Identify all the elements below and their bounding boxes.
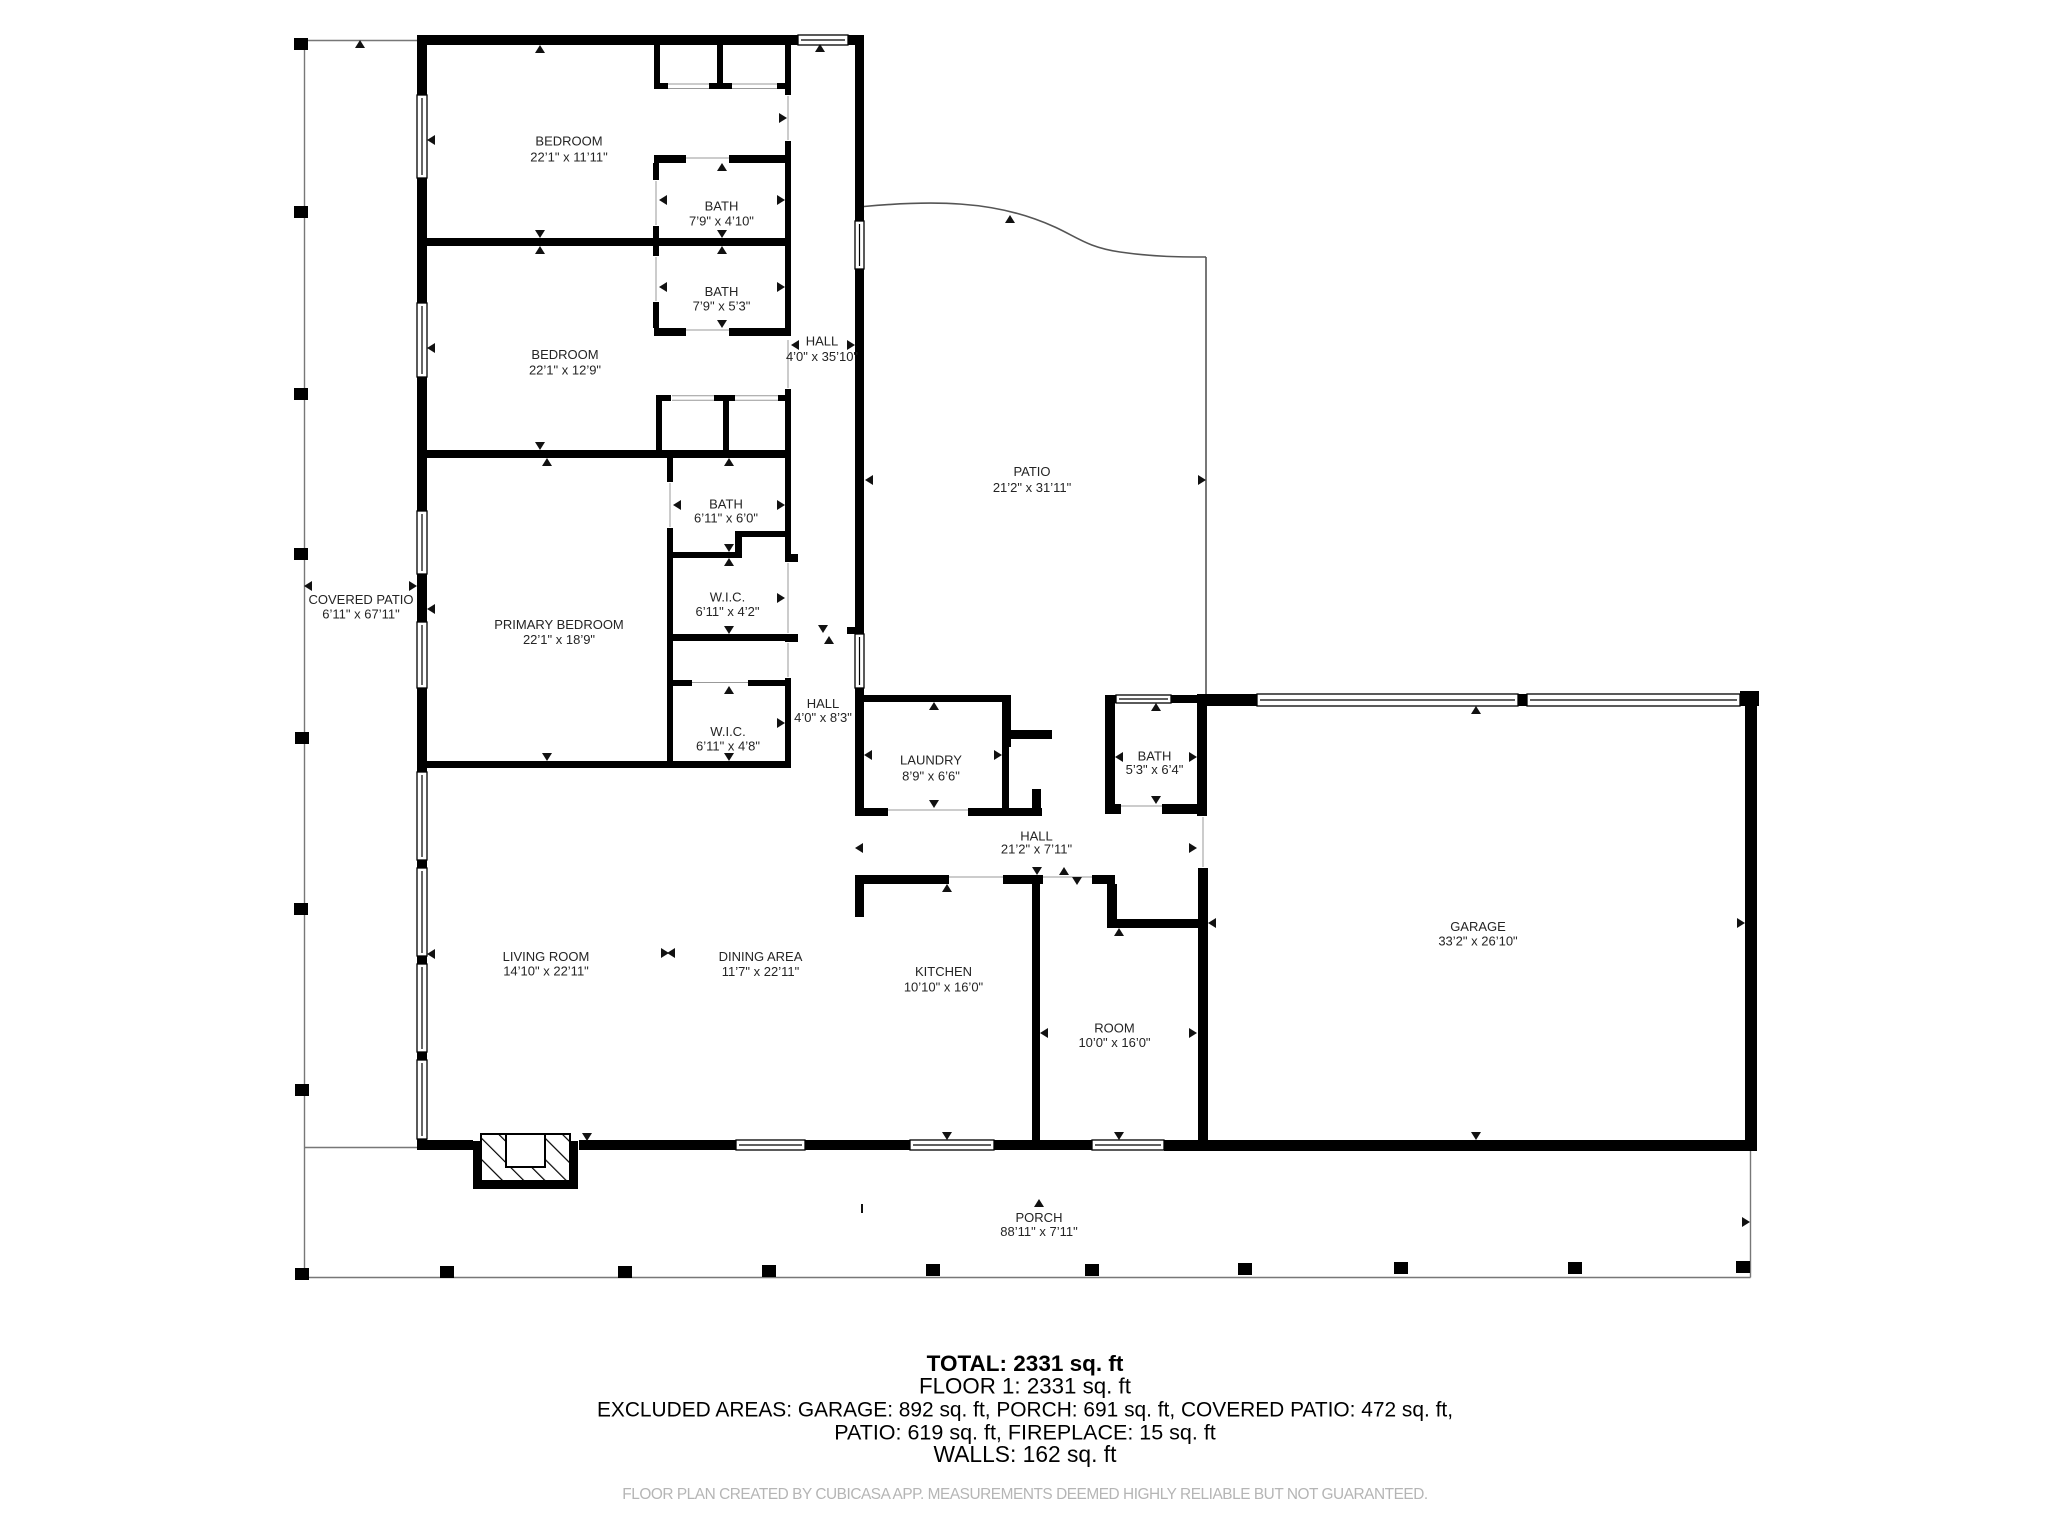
- svg-text:HALL: HALL: [806, 333, 839, 348]
- svg-text:88’11" x 7’11": 88’11" x 7’11": [1000, 1224, 1078, 1239]
- svg-text:BATH: BATH: [709, 496, 743, 511]
- svg-text:6’11" x 4’2": 6’11" x 4’2": [696, 604, 760, 619]
- svg-text:PATIO: PATIO: [1013, 464, 1050, 479]
- svg-text:GARAGE: GARAGE: [1450, 919, 1506, 934]
- svg-text:LIVING ROOM: LIVING ROOM: [503, 949, 590, 964]
- svg-text:22’1" x 11’11": 22’1" x 11’11": [530, 149, 608, 164]
- svg-text:LAUNDRY: LAUNDRY: [900, 752, 962, 767]
- svg-text:BATH: BATH: [1138, 748, 1172, 763]
- svg-text:BATH: BATH: [705, 198, 739, 213]
- svg-text:PORCH: PORCH: [1016, 1210, 1063, 1225]
- svg-text:WALLS: 162 sq. ft: WALLS: 162 sq. ft: [934, 1441, 1118, 1467]
- svg-text:21’2" x 31’11": 21’2" x 31’11": [993, 480, 1072, 495]
- svg-text:COVERED PATIO: COVERED PATIO: [309, 592, 414, 607]
- svg-text:W.I.C.: W.I.C.: [710, 724, 745, 739]
- svg-text:FLOOR PLAN CREATED BY CUBICASA: FLOOR PLAN CREATED BY CUBICASA APP. MEAS…: [622, 1486, 1427, 1503]
- svg-text:4’0" x 8’3": 4’0" x 8’3": [794, 710, 852, 725]
- svg-text:TOTAL: 2331 sq. ft: TOTAL: 2331 sq. ft: [927, 1351, 1124, 1376]
- svg-text:6’11" x 6’0": 6’11" x 6’0": [694, 510, 758, 525]
- svg-text:11’7" x 22’11": 11’7" x 22’11": [722, 964, 800, 979]
- svg-text:7’9" x 5’3": 7’9" x 5’3": [693, 299, 751, 314]
- svg-text:DINING AREA: DINING AREA: [719, 949, 803, 964]
- svg-text:BEDROOM: BEDROOM: [535, 133, 602, 148]
- svg-text:KITCHEN: KITCHEN: [915, 964, 972, 979]
- svg-text:8’9" x 6’6": 8’9" x 6’6": [902, 768, 960, 783]
- svg-text:5’3" x 6’4": 5’3" x 6’4": [1126, 762, 1184, 777]
- svg-text:BATH: BATH: [705, 284, 739, 299]
- svg-text:ROOM: ROOM: [1094, 1021, 1134, 1036]
- svg-text:22’1" x 12’9": 22’1" x 12’9": [529, 362, 601, 377]
- svg-text:HALL: HALL: [807, 696, 840, 711]
- svg-text:10’0" x 16’0": 10’0" x 16’0": [1078, 1035, 1150, 1050]
- svg-text:BEDROOM: BEDROOM: [531, 347, 598, 362]
- svg-text:10’10" x 16’0": 10’10" x 16’0": [904, 980, 984, 995]
- svg-text:21’2" x 7’11": 21’2" x 7’11": [1001, 842, 1073, 857]
- svg-text:6’11" x 67’11": 6’11" x 67’11": [322, 607, 400, 622]
- svg-text:EXCLUDED AREAS: GARAGE: 892 sq: EXCLUDED AREAS: GARAGE: 892 sq. ft, PORC…: [597, 1399, 1453, 1422]
- svg-text:7’9" x 4’10": 7’9" x 4’10": [689, 214, 754, 229]
- svg-text:PRIMARY BEDROOM: PRIMARY BEDROOM: [494, 617, 624, 632]
- svg-text:W.I.C.: W.I.C.: [710, 589, 745, 604]
- svg-text:33’2" x 26’10": 33’2" x 26’10": [1438, 934, 1518, 949]
- svg-text:22’1" x 18’9": 22’1" x 18’9": [523, 632, 595, 647]
- svg-text:4’0" x 35’10": 4’0" x 35’10": [786, 349, 858, 364]
- svg-text:6’11" x 4’8": 6’11" x 4’8": [696, 739, 760, 754]
- svg-text:FLOOR 1: 2331 sq. ft: FLOOR 1: 2331 sq. ft: [919, 1374, 1132, 1399]
- svg-text:14’10" x 22’11": 14’10" x 22’11": [503, 963, 589, 978]
